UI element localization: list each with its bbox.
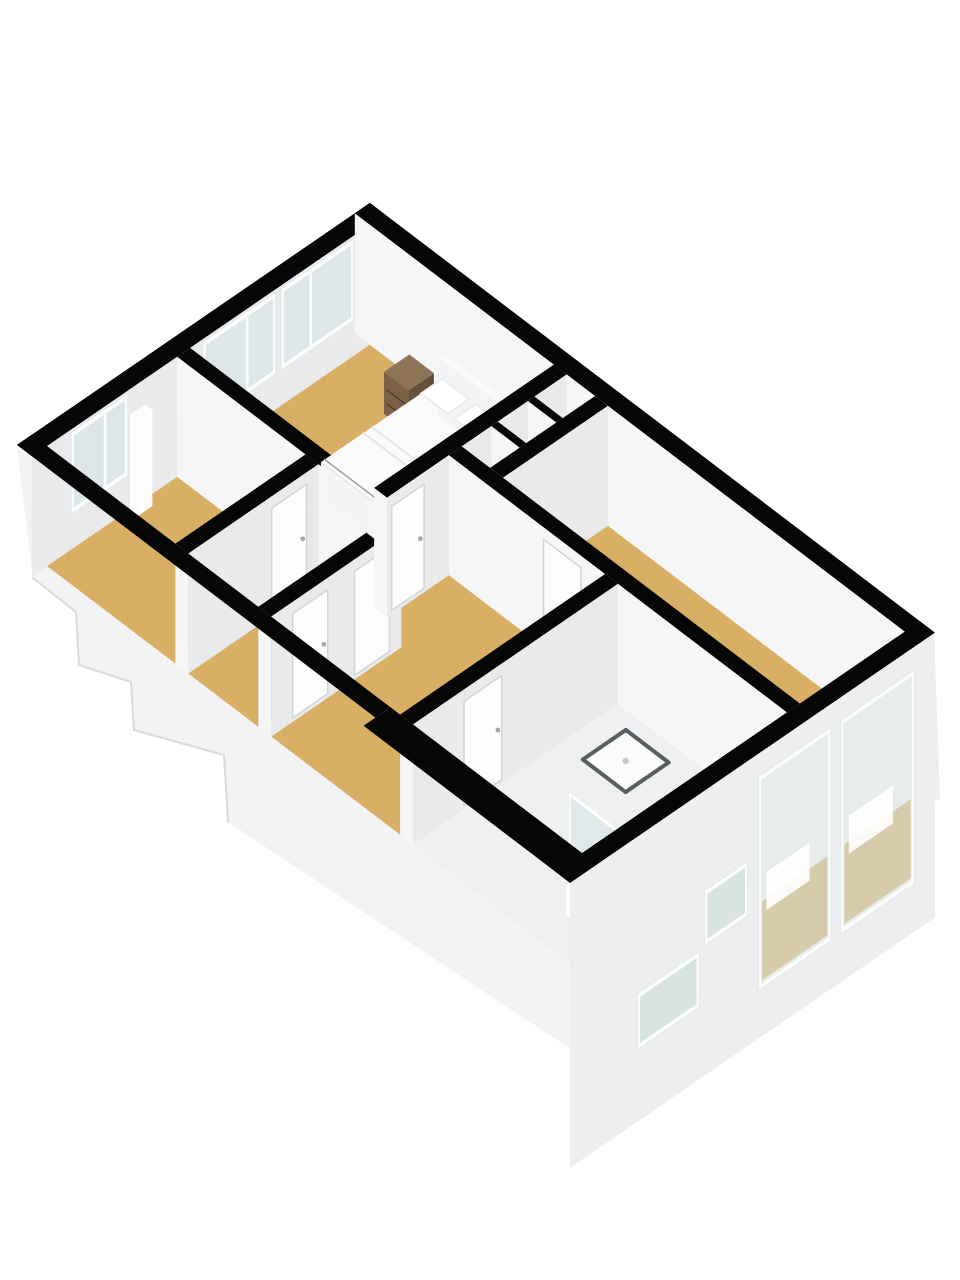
door-room-ab-handle-icon: [300, 536, 305, 541]
window-bedroom-1-mullion-0: [246, 316, 249, 390]
door-room-b-handle-icon: [321, 642, 326, 647]
floorplan-3d-view: [0, 0, 960, 1280]
panel_nw-front: [137, 410, 152, 516]
wall-iw5-face-sw: [374, 488, 387, 618]
panel_nw-side: [130, 415, 137, 517]
door-bathroom-handle-icon: [496, 728, 501, 733]
window-room-a-mullion-0: [104, 413, 107, 487]
shower_tray-drain: [623, 758, 629, 764]
window-bedroom-2-mullion-0: [309, 272, 312, 346]
door-bedroom: [392, 484, 424, 610]
floorplan-svg: [0, 0, 960, 1280]
door-bedroom-handle-icon: [418, 536, 423, 541]
